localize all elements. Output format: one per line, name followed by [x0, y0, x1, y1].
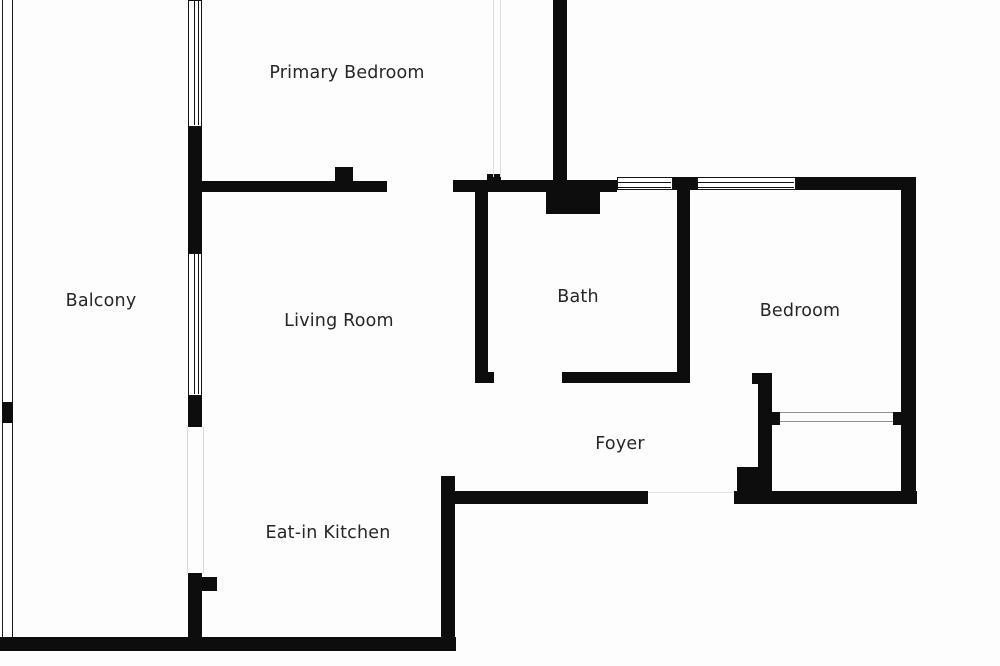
room-label-primary-bedroom: Primary Bedroom [269, 63, 424, 83]
opening-line-3 [203, 427, 204, 573]
wall-segment-0 [553, 0, 567, 191]
opening-line-1 [500, 0, 501, 177]
window-pane-line [194, 254, 195, 394]
wall-segment-22 [752, 373, 759, 384]
room-label-balcony: Balcony [66, 291, 137, 311]
opening-line-0 [493, 0, 494, 177]
wall-segment-9 [188, 126, 202, 254]
wall-segment-19 [562, 372, 690, 383]
window-pane-line [194, 1, 195, 125]
opening-line-2 [187, 427, 188, 573]
floor-plan: Primary BedroomBalconyLiving RoomBathBed… [0, 0, 1000, 666]
wall-segment-12 [202, 577, 217, 591]
wall-segment-10 [188, 396, 202, 427]
wall-segment-24 [893, 412, 902, 425]
wall-segment-13 [2, 402, 13, 423]
wall-segment-16 [455, 491, 648, 504]
window-icon-2 [617, 177, 673, 190]
wall-segment-23 [772, 412, 780, 425]
room-label-living-room: Living Room [284, 311, 394, 331]
window-pane-line [618, 187, 671, 188]
wall-segment-17 [475, 192, 488, 383]
room-label-eat-in-kitchen: Eat-in Kitchen [265, 523, 390, 543]
opening-line-4 [648, 492, 734, 493]
room-label-foyer: Foyer [595, 434, 644, 454]
window-pane-line [198, 1, 199, 125]
wall-segment-1 [202, 181, 387, 192]
room-label-bath: Bath [557, 287, 598, 307]
room-label-bedroom: Bedroom [760, 301, 841, 321]
wall-segment-6 [672, 177, 697, 190]
opening-line-5 [780, 412, 893, 413]
window-pane-line [698, 182, 794, 183]
wall-segment-5 [546, 191, 600, 214]
wall-segment-14 [0, 637, 456, 651]
window-pane-line [698, 187, 794, 188]
balcony-railing [2, 0, 13, 641]
wall-segment-26 [734, 491, 917, 504]
wall-segment-2 [335, 167, 353, 182]
wall-segment-8 [901, 177, 916, 504]
wall-segment-18 [475, 372, 494, 383]
window-icon-0 [188, 0, 202, 127]
window-pane-line [618, 182, 671, 183]
opening-line-6 [780, 421, 893, 422]
wall-segment-20 [677, 190, 690, 383]
window-pane-line [198, 254, 199, 394]
wall-segment-4 [487, 174, 501, 181]
window-icon-1 [188, 253, 202, 396]
wall-segment-15 [441, 476, 455, 651]
window-icon-3 [697, 177, 796, 190]
wall-segment-7 [795, 177, 916, 190]
